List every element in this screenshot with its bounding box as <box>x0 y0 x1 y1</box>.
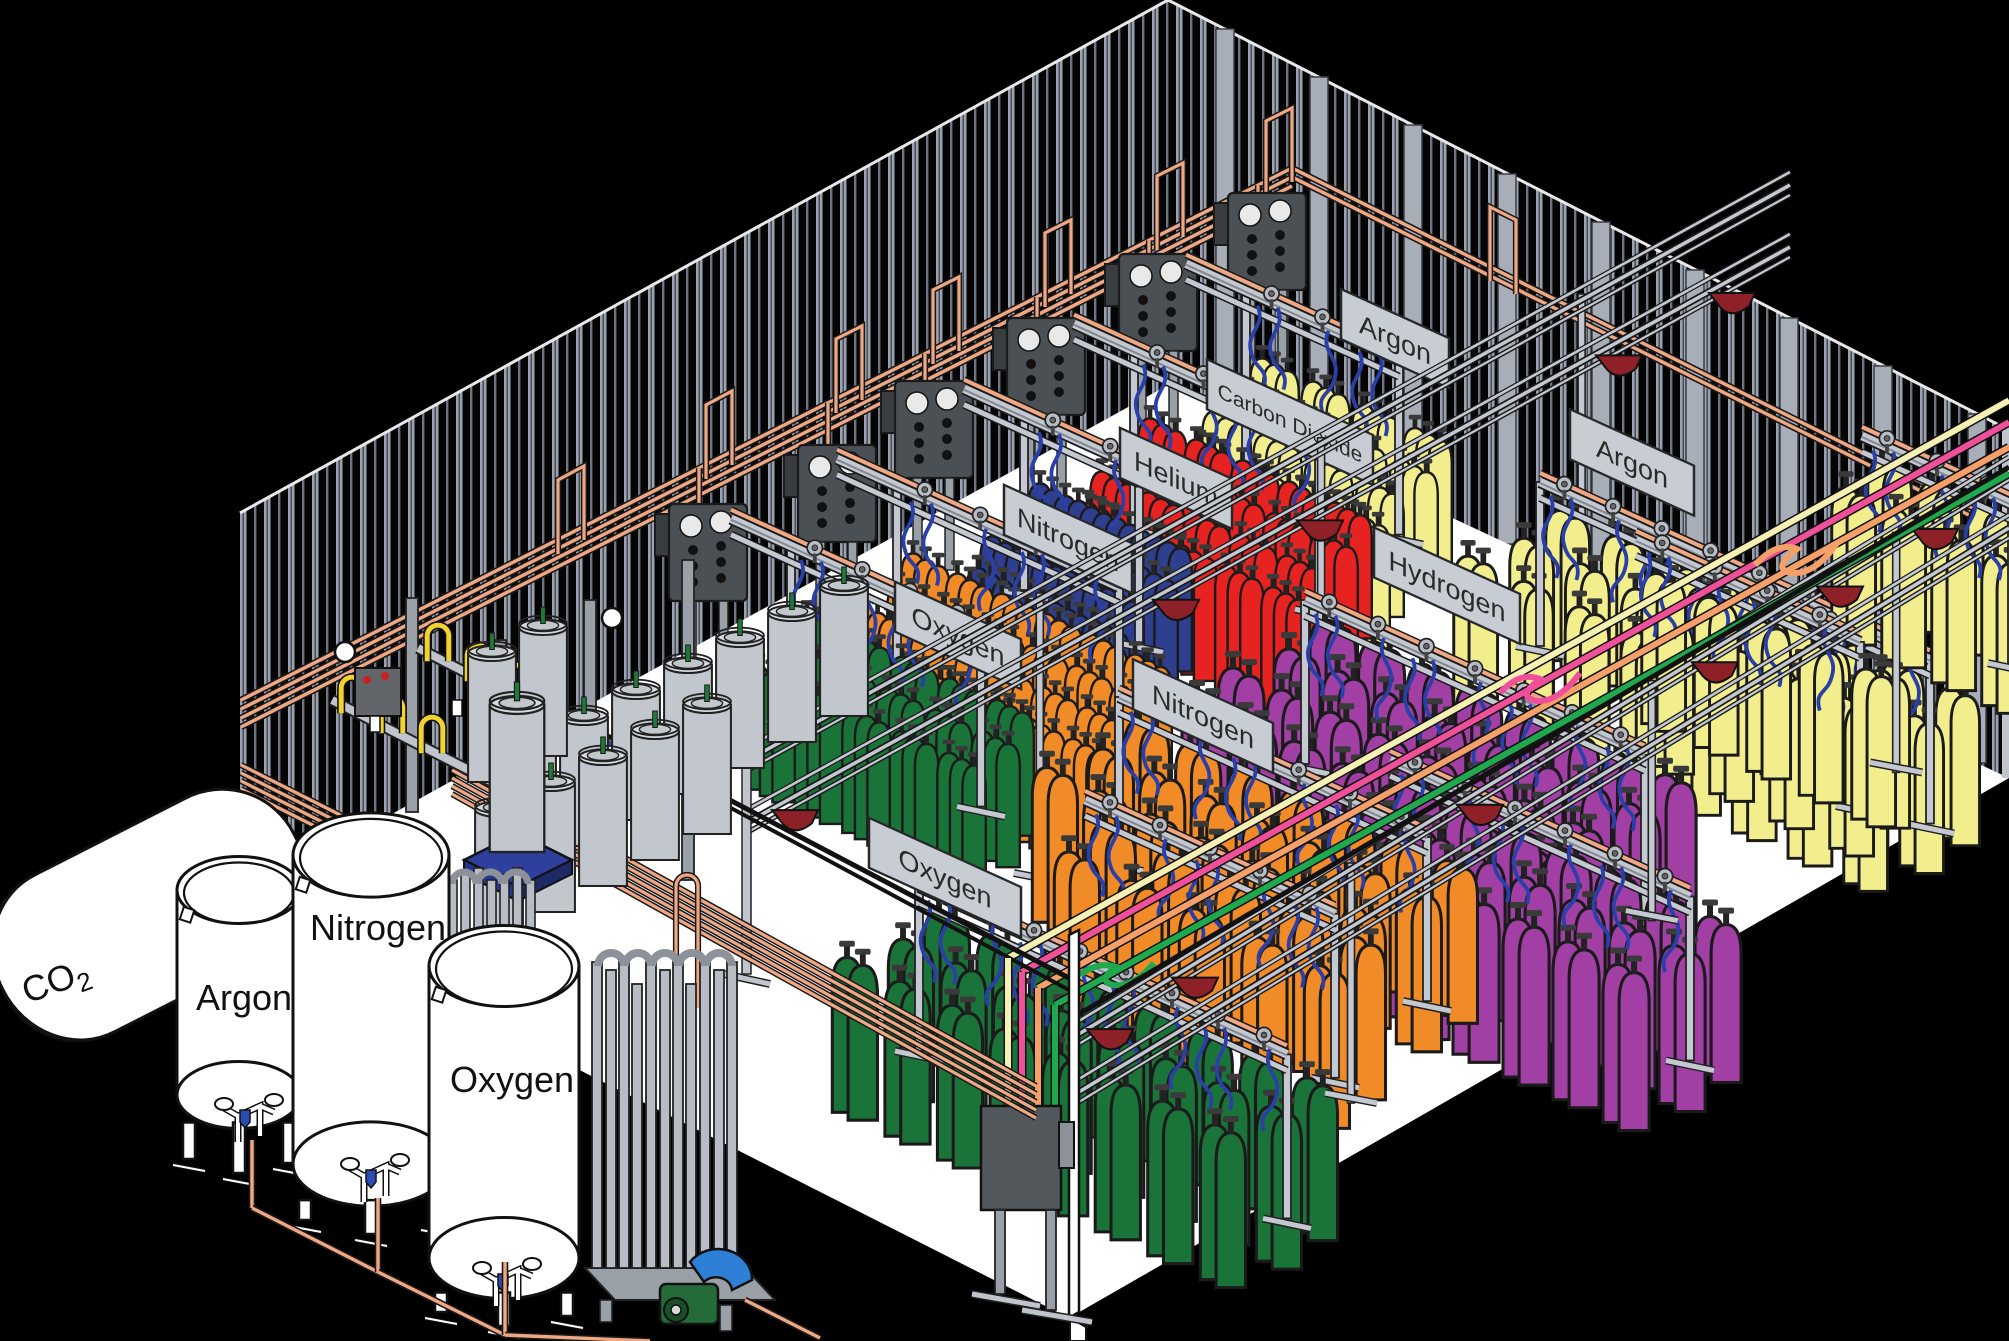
svg-text:Nitrogen: Nitrogen <box>310 907 446 948</box>
svg-text:Argon: Argon <box>196 977 292 1018</box>
svg-text:Oxygen: Oxygen <box>450 1059 574 1100</box>
